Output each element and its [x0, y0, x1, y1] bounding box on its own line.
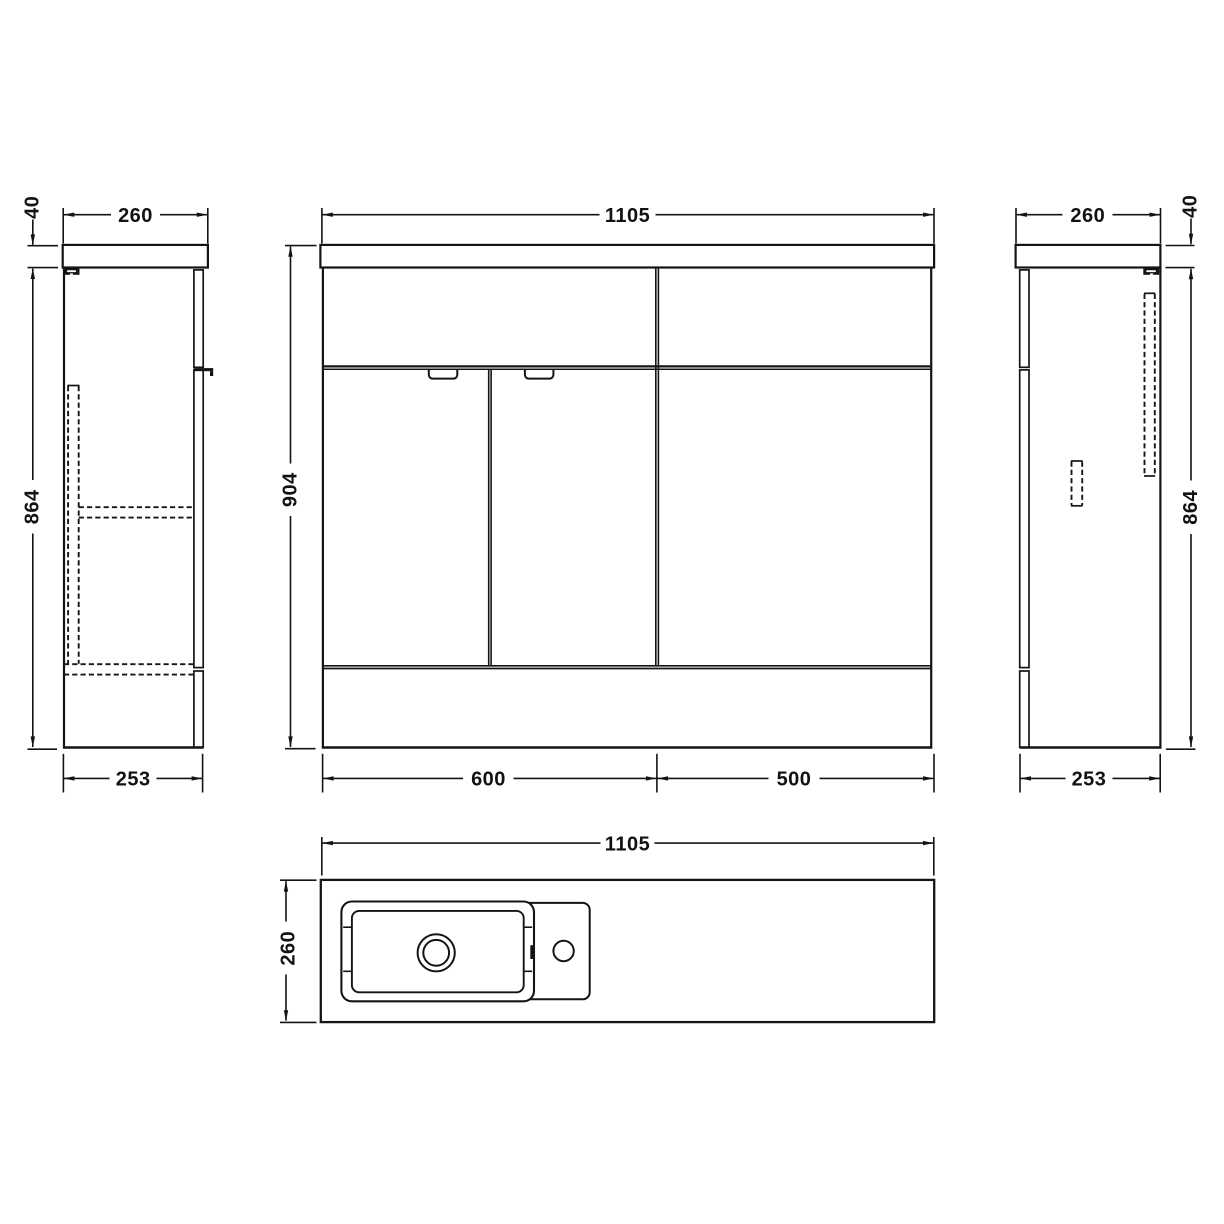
svg-text:1105: 1105	[605, 205, 650, 227]
svg-text:904: 904	[279, 472, 301, 507]
svg-text:500: 500	[777, 769, 812, 791]
svg-text:864: 864	[22, 489, 44, 524]
svg-text:864: 864	[1180, 489, 1202, 524]
svg-text:600: 600	[471, 769, 506, 791]
svg-text:40: 40	[1180, 195, 1202, 218]
svg-text:40: 40	[22, 196, 44, 219]
svg-text:253: 253	[1072, 769, 1107, 791]
svg-text:1105: 1105	[605, 833, 650, 855]
svg-text:253: 253	[116, 769, 151, 791]
svg-text:260: 260	[118, 205, 153, 227]
svg-text:260: 260	[278, 931, 300, 966]
svg-text:260: 260	[1070, 205, 1105, 227]
